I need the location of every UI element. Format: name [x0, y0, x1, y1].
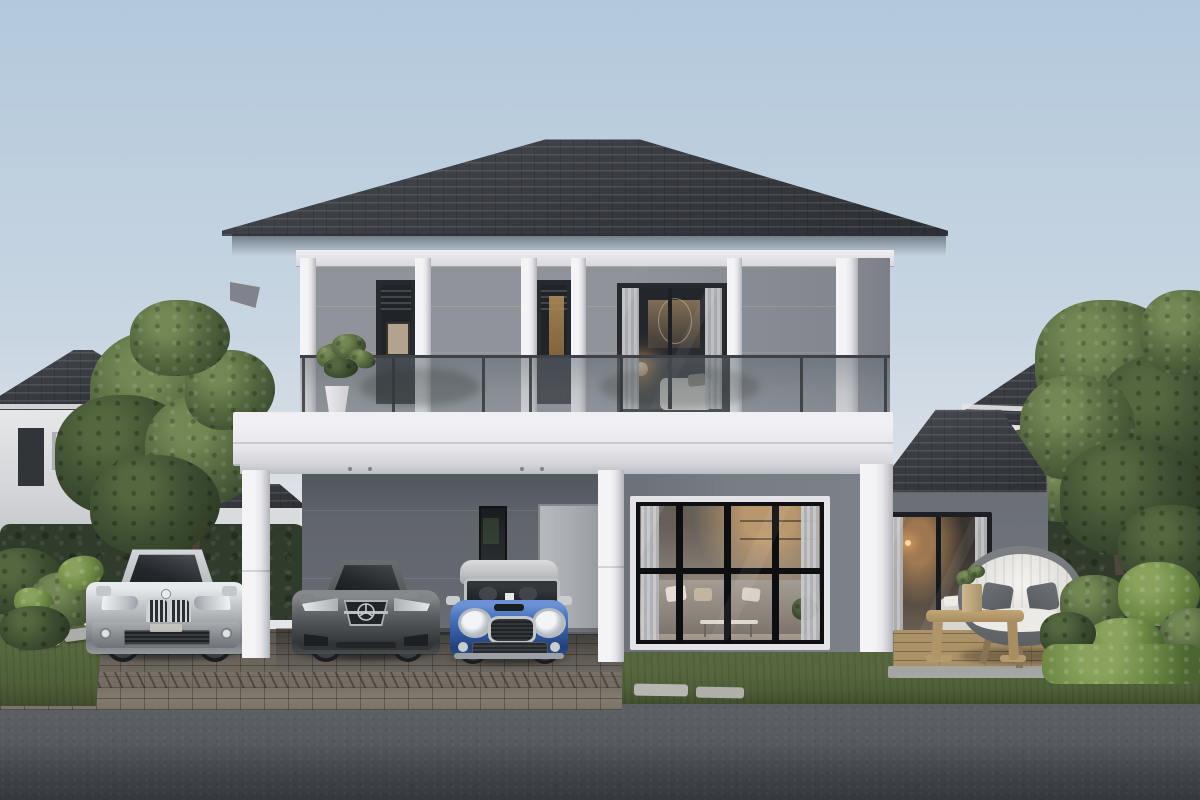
brand-roundel	[161, 589, 171, 599]
headlight	[101, 596, 138, 610]
glass-tree-reflection	[360, 368, 480, 406]
side-mirror	[222, 586, 237, 596]
balcony-glass-railing	[300, 355, 890, 415]
headlight	[458, 608, 492, 638]
headlight	[193, 596, 230, 610]
ceiling-downlight	[368, 467, 372, 471]
ceiling-downlight	[520, 467, 524, 471]
side-window	[479, 506, 507, 566]
ceiling-downlight	[540, 467, 544, 471]
interior-picture-frame	[386, 322, 410, 356]
neighbour-house-left-window	[18, 428, 44, 486]
column-seam	[598, 566, 624, 568]
hood-scoop	[494, 604, 524, 611]
railing-post	[392, 358, 395, 415]
bumper-trim	[454, 653, 564, 659]
ceiling-downlight	[348, 467, 352, 471]
car-mini-blue	[444, 560, 574, 666]
fog-light	[100, 628, 111, 639]
bumper-lip	[336, 642, 396, 648]
headlight	[532, 608, 566, 638]
table-leg	[1007, 618, 1019, 660]
shrub-row	[1042, 644, 1200, 684]
stepping-stone	[634, 684, 688, 697]
railing-post	[884, 358, 887, 415]
glass-tree-reflection	[600, 366, 760, 408]
railing-post	[529, 358, 532, 415]
fog-light	[458, 642, 468, 652]
asphalt-road	[0, 700, 1200, 800]
interior-seat	[479, 587, 497, 601]
fog-light	[550, 642, 560, 652]
bumper-intake	[124, 630, 210, 645]
corner-column	[860, 464, 893, 652]
window-louvers	[381, 288, 411, 310]
architectural-render: Photorealistic dusk rendering of a moder…	[0, 0, 1200, 800]
column-seam	[242, 570, 270, 572]
three-pointed-star	[356, 602, 376, 622]
railing-post	[727, 358, 730, 415]
tree-canopy	[1140, 290, 1200, 375]
car-suv-silver	[86, 546, 254, 666]
railing-post	[482, 358, 485, 415]
railing-post	[620, 358, 623, 415]
license-plate	[150, 624, 182, 632]
fog-light	[221, 628, 232, 639]
slab-seam	[233, 442, 893, 444]
dashboard-paper	[505, 593, 514, 600]
railing-post	[800, 358, 803, 415]
glass-reflection	[640, 506, 820, 640]
interior-seat	[519, 587, 537, 601]
side-mirror	[96, 586, 111, 596]
stepping-stone	[696, 687, 744, 699]
interior-wardrobe	[549, 296, 564, 358]
carport-ceiling	[240, 464, 888, 474]
window-hedge-reflection	[483, 518, 499, 544]
railing-post	[302, 358, 305, 415]
floor-slab-band	[233, 412, 893, 466]
grille	[488, 616, 536, 644]
carport-column	[242, 470, 270, 658]
table-planter	[962, 584, 982, 612]
car-sedan-graphite	[292, 556, 440, 666]
side-mirror	[300, 594, 314, 603]
carport-column	[598, 470, 624, 662]
side-mirror	[418, 594, 432, 603]
eave-fascia	[296, 250, 894, 267]
